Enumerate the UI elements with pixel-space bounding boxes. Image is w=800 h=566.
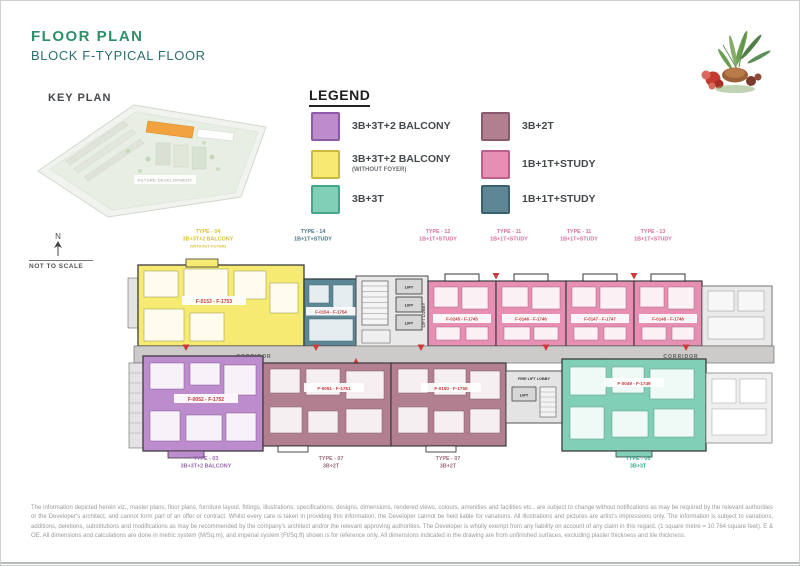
svg-text:TYPE - 12: TYPE - 12 bbox=[426, 229, 451, 235]
fire-lift-lobby: FIRE LIFT LOBBY LIFT bbox=[506, 371, 562, 423]
svg-text:TYPE - 11: TYPE - 11 bbox=[497, 229, 522, 235]
svg-text:TYPE - 13: TYPE - 13 bbox=[641, 229, 666, 235]
legend-label: 1B+1T+STUDY bbox=[522, 159, 596, 170]
unit-type05-teal: F-0049 - F-1749 bbox=[562, 359, 706, 457]
svg-text:TYPE - 07: TYPE - 07 bbox=[436, 456, 461, 462]
page-title: FLOOR PLAN bbox=[31, 28, 144, 45]
unit-number: F-0049 - F-1749 bbox=[617, 381, 651, 386]
balcony-rails bbox=[445, 274, 685, 281]
unit-type12-pink: F-0245 - F-1745 bbox=[428, 281, 496, 346]
north-arrow-icon bbox=[53, 241, 63, 257]
disclaimer-text: The information depicted herein viz., ma… bbox=[31, 504, 773, 541]
svg-text:TYPE - 14: TYPE - 14 bbox=[301, 229, 326, 235]
legend-label: 3B+3T+2 BALCONY bbox=[352, 121, 451, 132]
lift-label: LIFT bbox=[405, 303, 414, 308]
svg-text:1B+1T+STUDY: 1B+1T+STUDY bbox=[294, 237, 332, 243]
legend-title: LEGEND bbox=[309, 87, 370, 107]
unit-number: F-0153 - F-1753 bbox=[196, 299, 232, 305]
svg-text:TYPE - 07: TYPE - 07 bbox=[319, 456, 344, 462]
top-type-labels: TYPE - 04 3B+3T+2 BALCONY (WITHOUT FOYER… bbox=[183, 229, 673, 249]
unit-number: F-0147 - F-1747 bbox=[584, 317, 616, 322]
type-label-12: TYPE - 12 1B+1T+STUDY bbox=[419, 229, 457, 243]
legend-swatch-purple bbox=[311, 112, 340, 141]
legend-label: 3B+3T bbox=[352, 194, 384, 205]
svg-text:TYPE - 04: TYPE - 04 bbox=[196, 229, 221, 235]
svg-text:TYPE - 11: TYPE - 11 bbox=[567, 229, 592, 235]
svg-text:1B+1T+STUDY: 1B+1T+STUDY bbox=[634, 237, 672, 243]
future-development-label: FUTURE DEVELOPMENT bbox=[138, 178, 193, 183]
unit-type07-mauve-a: F-0051 - F-1751 bbox=[263, 363, 391, 452]
legend-item: 1B+1T+STUDY bbox=[481, 185, 596, 214]
fire-lift-lobby-label: FIRE LIFT LOBBY bbox=[518, 377, 551, 381]
flower-leaves-icon bbox=[717, 30, 772, 70]
type-label-05: TYPE - 05 3B+3T bbox=[626, 456, 651, 470]
staircase bbox=[362, 281, 388, 325]
not-to-scale-label: NOT TO SCALE bbox=[29, 260, 93, 270]
unit-type03-purple: F-0052 - F-1752 bbox=[143, 356, 263, 458]
unit-number: F-0150 - F-1750 bbox=[434, 386, 468, 391]
floor-plan-page: FLOOR PLAN BLOCK F-TYPICAL FLOOR KEY PLA… bbox=[0, 0, 800, 566]
central-core: LIFT LIFT LIFT LIFT LOBBY bbox=[356, 276, 428, 348]
legend-item: 3B+2T bbox=[481, 112, 554, 141]
unit-type11-pink-b: F-0147 - F-1747 bbox=[566, 281, 634, 346]
legend-swatch-pink bbox=[481, 150, 510, 179]
lift-label: LIFT bbox=[520, 393, 529, 398]
unit-number: F-0051 - F-1751 bbox=[317, 386, 351, 391]
legend-swatch-slate bbox=[481, 185, 510, 214]
floor-plan-drawing: TYPE - 04 3B+3T+2 BALCONY (WITHOUT FOYER… bbox=[126, 223, 786, 473]
key-plan-map: FUTURE DEVELOPMENT bbox=[36, 99, 271, 224]
unit-number: F-0148 - F-1748 bbox=[652, 317, 684, 322]
legend-item: 3B+3T bbox=[311, 185, 384, 214]
legend-item: 3B+3T+2 BALCONY (WITHOUT FOYER) bbox=[311, 150, 451, 179]
page-subtitle: BLOCK F-TYPICAL FLOOR bbox=[31, 48, 206, 63]
svg-text:3B+2T: 3B+2T bbox=[323, 464, 340, 470]
unit-type04-yellow: F-0153 - F-1753 bbox=[138, 259, 304, 346]
svg-text:TYPE - 05: TYPE - 05 bbox=[626, 456, 651, 462]
flower-decoration bbox=[679, 23, 791, 99]
legend-swatch-mauve bbox=[481, 112, 510, 141]
legend-swatch-yellow bbox=[311, 150, 340, 179]
type-label-14: TYPE - 14 1B+1T+STUDY bbox=[294, 229, 332, 243]
svg-text:3B+3T+2 BALCONY: 3B+3T+2 BALCONY bbox=[181, 464, 232, 470]
pink-units: F-0245 - F-1745 F-0146 - F-1746 F-0147 - bbox=[428, 274, 702, 346]
service-rooms-left-top bbox=[128, 278, 138, 328]
legend-item: 1B+1T+STUDY bbox=[481, 150, 596, 179]
svg-text:3B+2T: 3B+2T bbox=[440, 464, 457, 470]
north-label: N bbox=[51, 233, 65, 241]
type-label-11a: TYPE - 11 1B+1T+STUDY bbox=[490, 229, 528, 243]
unit-number: F-0245 - F-1745 bbox=[446, 317, 478, 322]
unit-type11-pink-a: F-0146 - F-1746 bbox=[496, 281, 566, 346]
lift-label: LIFT bbox=[405, 285, 414, 290]
north-indicator: N bbox=[51, 233, 65, 262]
svg-text:1B+1T+STUDY: 1B+1T+STUDY bbox=[560, 237, 598, 243]
service-rooms-right-top bbox=[702, 286, 772, 346]
type-label-04: TYPE - 04 3B+3T+2 BALCONY (WITHOUT FOYER… bbox=[183, 229, 234, 249]
lift-bank: LIFT LIFT LIFT bbox=[396, 279, 422, 330]
legend-label: 1B+1T+STUDY bbox=[522, 194, 596, 205]
bottom-type-labels: TYPE - 03 3B+3T+2 BALCONY TYPE - 07 3B+2… bbox=[181, 456, 651, 470]
unit-number: F-0052 - F-1752 bbox=[188, 397, 224, 403]
legend-swatch-teal bbox=[311, 185, 340, 214]
type-label-07b: TYPE - 07 3B+2T bbox=[436, 456, 461, 470]
bottom-divider bbox=[1, 562, 799, 564]
svg-text:3B+3T+2 BALCONY: 3B+3T+2 BALCONY bbox=[183, 237, 234, 243]
service-rooms-right-bottom bbox=[706, 373, 772, 443]
lift-label: LIFT bbox=[405, 321, 414, 326]
lift-lobby-label: LIFT LOBBY bbox=[421, 302, 426, 327]
legend-item: 3B+3T+2 BALCONY bbox=[311, 112, 451, 141]
unit-type13-pink: F-0148 - F-1748 bbox=[634, 281, 702, 346]
legend-label: 3B+3T+2 BALCONY (WITHOUT FOYER) bbox=[352, 154, 451, 176]
legend-label: 3B+2T bbox=[522, 121, 554, 132]
svg-text:TYPE - 03: TYPE - 03 bbox=[194, 456, 219, 462]
legend-sublabel: (WITHOUT FOYER) bbox=[352, 165, 451, 176]
svg-text:1B+1T+STUDY: 1B+1T+STUDY bbox=[490, 237, 528, 243]
unit-type07-mauve-b: F-0150 - F-1750 bbox=[391, 363, 506, 452]
service-rooms-left-bottom bbox=[129, 363, 143, 448]
type-label-13: TYPE - 13 1B+1T+STUDY bbox=[634, 229, 672, 243]
unit-type14-slate: F-0154 - F-1754 bbox=[304, 279, 358, 346]
unit-number: F-0154 - F-1754 bbox=[315, 310, 347, 315]
type-label-07a: TYPE - 07 3B+2T bbox=[319, 456, 344, 470]
svg-text:1B+1T+STUDY: 1B+1T+STUDY bbox=[419, 237, 457, 243]
svg-text:3B+3T: 3B+3T bbox=[630, 464, 647, 470]
svg-text:(WITHOUT FOYER): (WITHOUT FOYER) bbox=[190, 244, 227, 249]
unit-number: F-0146 - F-1746 bbox=[515, 317, 547, 322]
flower-bloom-icon bbox=[702, 68, 762, 94]
type-label-11b: TYPE - 11 1B+1T+STUDY bbox=[560, 229, 598, 243]
